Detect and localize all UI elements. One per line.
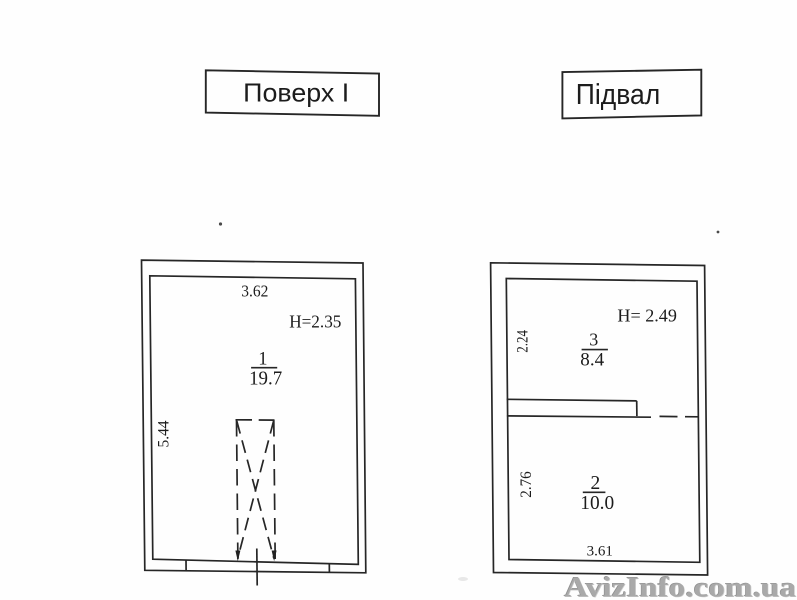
svg-text:3.61: 3.61	[587, 544, 613, 560]
svg-text:8.4: 8.4	[580, 349, 604, 370]
svg-text:2.24: 2.24	[514, 330, 531, 353]
svg-text:Поверх I: Поверх I	[243, 78, 349, 108]
svg-text:Підвал: Підвал	[576, 79, 661, 111]
svg-text:2: 2	[591, 473, 601, 494]
svg-text:3: 3	[589, 329, 598, 349]
svg-text:H=2.35: H=2.35	[289, 312, 341, 332]
svg-text:19.7: 19.7	[249, 368, 282, 389]
svg-text:10.0: 10.0	[580, 493, 614, 514]
svg-text:H= 2.49: H= 2.49	[617, 306, 677, 326]
svg-text:3.62: 3.62	[241, 282, 268, 301]
svg-text:AvizInfo.com.ua: AvizInfo.com.ua	[564, 573, 796, 600]
svg-text:5.44: 5.44	[156, 420, 173, 447]
svg-text:2.76: 2.76	[518, 471, 535, 498]
svg-text:1: 1	[258, 349, 267, 369]
